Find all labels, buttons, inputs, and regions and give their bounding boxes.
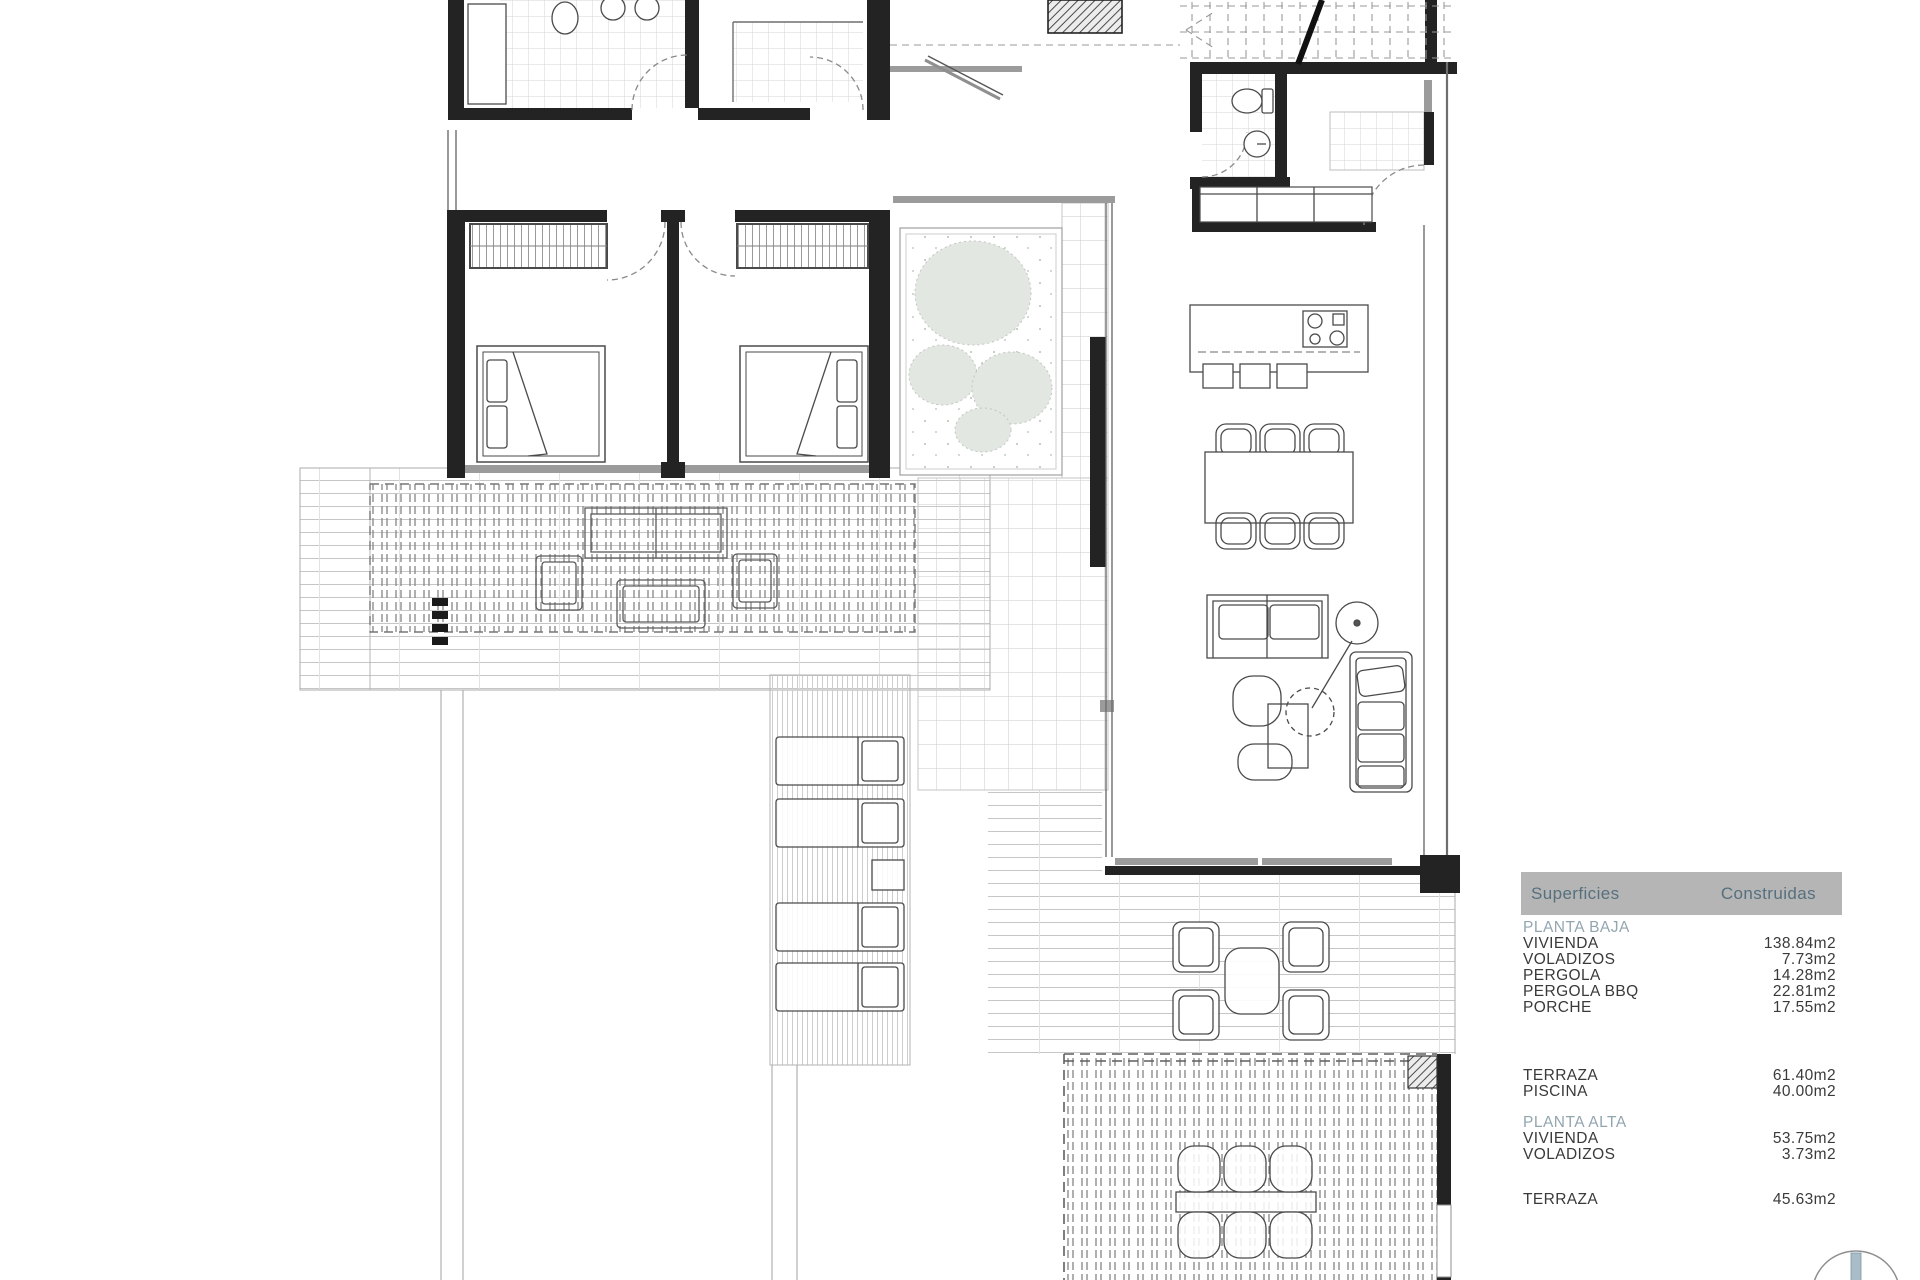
wardrobe-bedroom-2 <box>737 224 868 268</box>
sofa <box>1207 595 1328 658</box>
area-row: TERRAZA 45.63m2 <box>1523 1192 1836 1208</box>
area-row: PORCHE 17.55m2 <box>1523 1000 1836 1016</box>
dining-chairs-bottom <box>1216 513 1344 549</box>
floor-plan-sheet: Superficies Construidas PLANTA BAJA VIVI… <box>0 0 1920 1280</box>
bed-bedroom-2 <box>740 346 868 462</box>
north-arrow-icon <box>1812 1251 1900 1280</box>
stairs <box>890 0 1452 64</box>
pool-lounge-chairs <box>1176 1146 1316 1258</box>
armchair <box>1233 676 1281 726</box>
area-row: PERGOLA BBQ 22.81m2 <box>1523 984 1836 1000</box>
chaise-lounge <box>1350 652 1412 792</box>
side-table <box>1268 704 1308 768</box>
bed-bedroom-1 <box>477 346 605 462</box>
section-title: PLANTA BAJA <box>1523 920 1836 936</box>
area-row: VIVIENDA 138.84m2 <box>1523 936 1836 952</box>
entry-slider-door <box>925 56 1003 99</box>
pool-low-table <box>1176 1192 1316 1212</box>
kitchen-cabinet-row <box>1200 187 1372 222</box>
outdoor-table <box>1225 948 1279 1014</box>
section-planta-baja: PLANTA BAJA VIVIENDA 138.84m2 VOLADIZOS … <box>1521 920 1842 1016</box>
stool <box>1240 364 1270 388</box>
wardrobe-bedroom-1 <box>470 224 607 268</box>
areas-panel-header: Superficies Construidas <box>1521 872 1842 915</box>
kitchen-island <box>1190 305 1368 388</box>
area-row: TERRAZA 61.40m2 <box>1523 1068 1836 1084</box>
area-row: VOLADIZOS 3.73m2 <box>1523 1147 1836 1163</box>
header-col-construidas: Construidas <box>1721 884 1816 904</box>
header-col-superficies: Superficies <box>1531 884 1620 904</box>
area-row: PERGOLA 14.28m2 <box>1523 968 1836 984</box>
area-row: PISCINA 40.00m2 <box>1523 1084 1836 1100</box>
pool-gate <box>1437 1205 1451 1277</box>
area-row: VOLADIZOS 7.73m2 <box>1523 952 1836 968</box>
courtyard-tree-plot <box>900 228 1062 475</box>
section-exterior-baja: TERRAZA 61.40m2 PISCINA 40.00m2 <box>1521 1068 1842 1100</box>
living-room-furniture <box>1207 595 1412 792</box>
dining-set <box>1205 424 1353 549</box>
armchair <box>1238 744 1292 780</box>
rug <box>1286 688 1334 736</box>
section-planta-alta: PLANTA ALTA VIVIENDA 53.75m2 VOLADIZOS 3… <box>1521 1115 1842 1163</box>
deck-table <box>872 860 904 890</box>
stool <box>1277 364 1307 388</box>
section-title: PLANTA ALTA <box>1523 1115 1836 1131</box>
section-exterior-alta: TERRAZA 45.63m2 <box>1521 1192 1842 1208</box>
garden-path-lines <box>441 690 797 1280</box>
area-row: VIVIENDA 53.75m2 <box>1523 1131 1836 1147</box>
areas-panel: Superficies Construidas PLANTA BAJA VIVI… <box>1521 872 1842 1208</box>
stool <box>1203 364 1233 388</box>
